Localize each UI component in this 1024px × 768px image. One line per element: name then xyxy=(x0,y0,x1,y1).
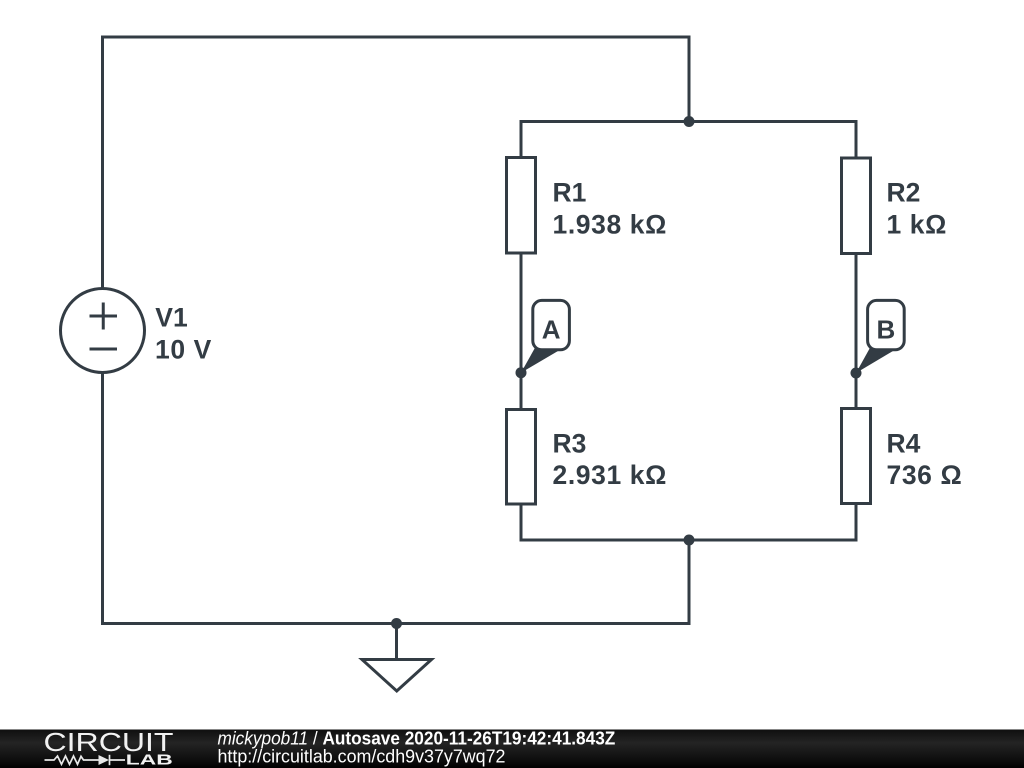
svg-text:B: B xyxy=(877,315,896,345)
svg-text:V1: V1 xyxy=(155,303,187,333)
svg-text:http://circuitlab.com/cdh9v37y: http://circuitlab.com/cdh9v37y7wq72 xyxy=(218,745,506,766)
svg-text:LAB: LAB xyxy=(126,753,173,768)
svg-text:1.938 kΩ: 1.938 kΩ xyxy=(553,209,667,239)
svg-text:10 V: 10 V xyxy=(155,334,212,364)
svg-text:R2: R2 xyxy=(887,178,921,208)
svg-text:736 Ω: 736 Ω xyxy=(887,460,963,490)
svg-text:R4: R4 xyxy=(887,428,921,458)
svg-text:R1: R1 xyxy=(553,178,587,208)
svg-text:A: A xyxy=(542,315,561,345)
svg-text:R3: R3 xyxy=(553,428,587,458)
svg-text:2.931 kΩ: 2.931 kΩ xyxy=(553,460,667,490)
svg-text:1 kΩ: 1 kΩ xyxy=(887,209,948,239)
